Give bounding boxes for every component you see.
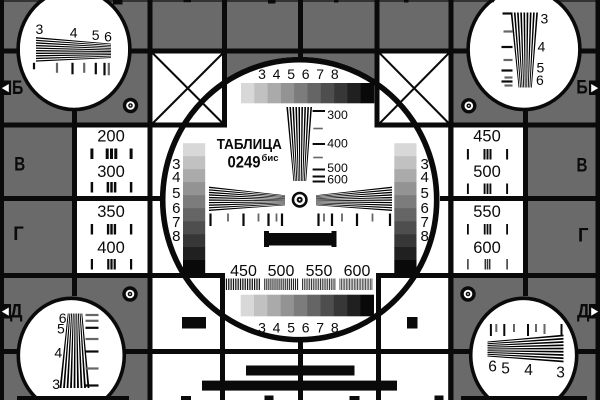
svg-text:Г: Г bbox=[13, 223, 23, 245]
svg-text:3: 3 bbox=[52, 376, 60, 392]
svg-text:5: 5 bbox=[287, 320, 295, 336]
svg-text:450: 450 bbox=[230, 263, 257, 280]
svg-text:Б: Б bbox=[576, 77, 587, 99]
svg-text:В: В bbox=[14, 154, 25, 176]
svg-text:3: 3 bbox=[541, 11, 549, 27]
svg-text:3: 3 bbox=[258, 320, 266, 336]
svg-text:450: 450 bbox=[473, 128, 501, 146]
svg-text:Д: Д bbox=[10, 301, 23, 323]
svg-text:В: В bbox=[577, 155, 588, 177]
svg-text:400: 400 bbox=[327, 137, 348, 151]
svg-text:8: 8 bbox=[172, 228, 180, 245]
svg-text:600: 600 bbox=[344, 263, 371, 280]
svg-text:3: 3 bbox=[258, 66, 266, 82]
svg-text:4: 4 bbox=[54, 344, 62, 360]
svg-text:5: 5 bbox=[92, 27, 100, 43]
svg-text:Г: Г bbox=[578, 225, 589, 247]
svg-text:5: 5 bbox=[287, 66, 295, 82]
svg-text:бис: бис bbox=[262, 153, 279, 164]
svg-text:350: 350 bbox=[97, 203, 125, 221]
svg-text:400: 400 bbox=[97, 239, 125, 257]
svg-text:8: 8 bbox=[421, 228, 429, 245]
svg-text:300: 300 bbox=[97, 163, 125, 181]
svg-text:7: 7 bbox=[316, 66, 324, 82]
svg-text:500: 500 bbox=[473, 163, 501, 181]
svg-text:600: 600 bbox=[473, 239, 501, 257]
svg-text:7: 7 bbox=[316, 320, 324, 336]
svg-text:500: 500 bbox=[268, 263, 295, 280]
svg-text:0249: 0249 bbox=[228, 153, 261, 172]
svg-text:4: 4 bbox=[273, 66, 281, 82]
svg-text:4: 4 bbox=[172, 169, 180, 186]
svg-text:5: 5 bbox=[501, 360, 510, 377]
svg-text:5: 5 bbox=[57, 321, 65, 337]
svg-text:200: 200 bbox=[97, 128, 125, 146]
svg-text:4: 4 bbox=[524, 362, 533, 379]
svg-text:6: 6 bbox=[302, 320, 310, 336]
svg-text:4: 4 bbox=[538, 39, 546, 55]
svg-text:3: 3 bbox=[36, 21, 44, 37]
svg-text:6: 6 bbox=[488, 359, 497, 376]
svg-text:8: 8 bbox=[331, 66, 339, 82]
svg-text:4: 4 bbox=[421, 169, 429, 186]
svg-text:6: 6 bbox=[536, 72, 544, 88]
svg-text:ТАБЛИЦА: ТАБЛИЦА bbox=[217, 136, 282, 153]
svg-text:4: 4 bbox=[273, 320, 281, 336]
svg-text:4: 4 bbox=[70, 25, 78, 41]
svg-text:550: 550 bbox=[473, 203, 501, 221]
svg-text:300: 300 bbox=[327, 108, 348, 122]
svg-text:6: 6 bbox=[302, 66, 310, 82]
svg-text:600: 600 bbox=[327, 173, 348, 187]
svg-text:8: 8 bbox=[331, 320, 339, 336]
svg-text:Д: Д bbox=[577, 301, 590, 323]
svg-text:Б: Б bbox=[12, 77, 23, 99]
svg-text:6: 6 bbox=[104, 28, 112, 44]
svg-text:3: 3 bbox=[556, 364, 565, 381]
svg-text:550: 550 bbox=[306, 263, 333, 280]
